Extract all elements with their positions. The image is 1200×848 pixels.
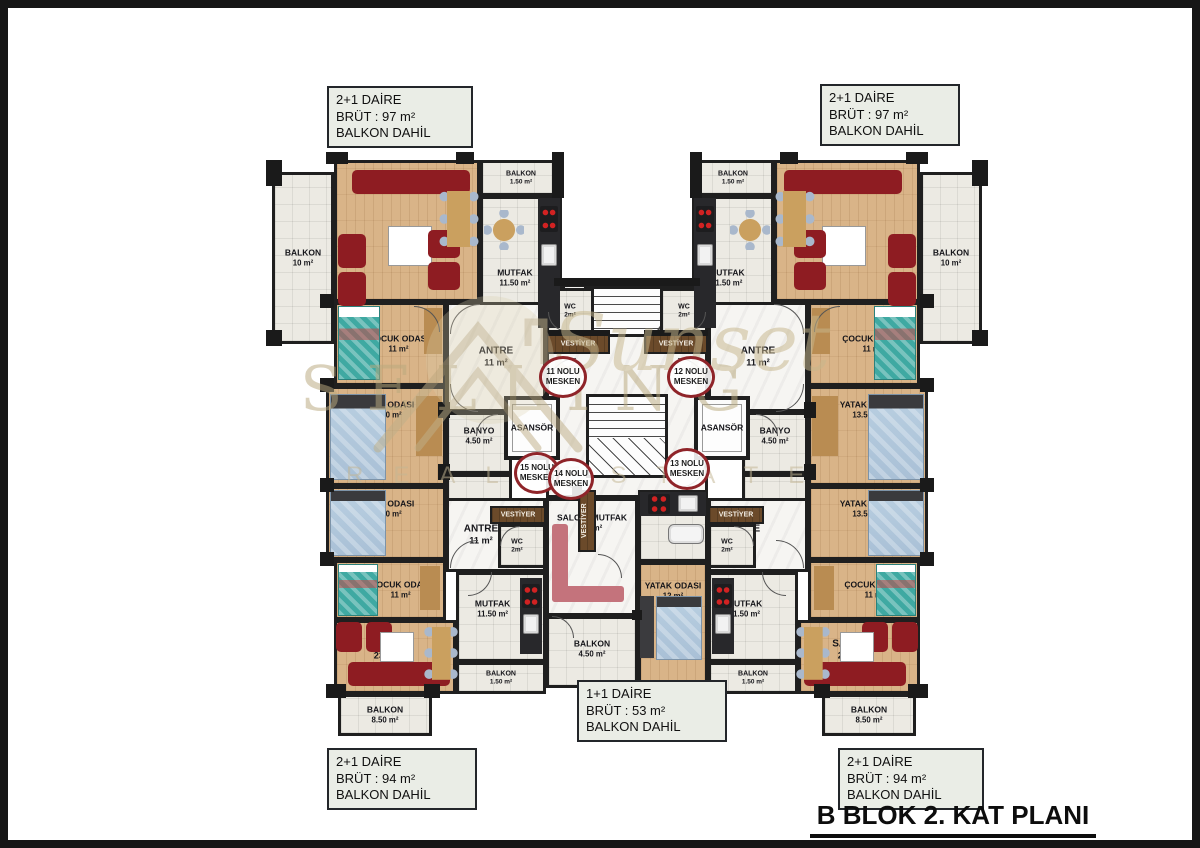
room-balkon-150-top: BALKON1.50 m² bbox=[480, 160, 562, 196]
unit-type: 1+1 DAİRE bbox=[586, 686, 718, 703]
unit-area: BRÜT : 97 m² bbox=[829, 107, 951, 124]
wall-pier bbox=[554, 278, 700, 286]
furniture-dining bbox=[438, 184, 480, 254]
furniture-bedteal bbox=[874, 306, 916, 380]
wall-pier bbox=[552, 152, 564, 198]
furniture-rect bbox=[388, 226, 432, 266]
wall-pier bbox=[644, 330, 708, 336]
wall-pier bbox=[632, 610, 642, 620]
room-balkon-10: BALKON10 m² bbox=[920, 172, 982, 344]
wall-pier bbox=[906, 152, 928, 164]
room-balkon-150-bot: BALKON1.50 m² bbox=[456, 662, 546, 694]
unit-note: BALKON DAHİL bbox=[586, 719, 718, 736]
furniture-bedblue bbox=[868, 394, 924, 480]
wall-pier bbox=[780, 152, 798, 164]
furniture-stove bbox=[522, 584, 540, 608]
furniture-sink bbox=[523, 614, 539, 634]
furniture-stove bbox=[648, 494, 670, 514]
wall-pier bbox=[438, 464, 450, 480]
furniture-dining bbox=[796, 620, 830, 686]
mesken-number-badge: 13 NOLUMESKEN bbox=[664, 448, 710, 490]
room-label-balkon-150-top: BALKON1.50 m² bbox=[483, 169, 559, 186]
unit-type: 2+1 DAİRE bbox=[847, 754, 975, 771]
room-vestiyer-14: VESTİYER bbox=[578, 490, 596, 552]
furniture-stove bbox=[540, 206, 558, 232]
wall-pier bbox=[690, 152, 702, 198]
wall-pier bbox=[546, 330, 610, 336]
furniture-rect bbox=[338, 272, 366, 306]
room-label-balkon-450: BALKON4.50 m² bbox=[549, 638, 635, 659]
furniture-stove bbox=[714, 584, 732, 608]
furniture-bedteal bbox=[338, 306, 380, 380]
room-label-vestiyer-top: VESTİYER bbox=[548, 339, 608, 348]
wall-pier bbox=[814, 684, 830, 698]
furniture-bedteal bbox=[338, 564, 378, 616]
unit-info-box-top-left: 2+1 DAİRE BRÜT : 97 m² BALKON DAHİL bbox=[327, 86, 473, 148]
unit-note: BALKON DAHİL bbox=[336, 125, 464, 142]
wall-pier bbox=[804, 402, 816, 418]
furniture-tub bbox=[668, 524, 704, 544]
room-asansor: ASANSÖR bbox=[504, 396, 560, 460]
furniture-rect bbox=[552, 586, 624, 602]
room-stairs-mid bbox=[586, 394, 668, 478]
unit-note: BALKON DAHİL bbox=[829, 123, 951, 140]
furniture-rect bbox=[822, 226, 866, 266]
mesken-number-badge: 11 NOLUMESKEN bbox=[539, 356, 587, 398]
furniture-rtable bbox=[730, 210, 770, 250]
room-label-balkon-850: BALKON8.50 m² bbox=[341, 704, 429, 725]
room-balkon-150-top: BALKON1.50 m² bbox=[692, 160, 774, 196]
furniture-stove bbox=[696, 206, 714, 232]
furniture-sink bbox=[697, 244, 713, 266]
room-label-vestiyer-14: VESTİYER bbox=[580, 492, 594, 550]
room-label-vestiyer-bot: VESTİYER bbox=[710, 510, 762, 519]
room-label-vestiyer-top: VESTİYER bbox=[646, 339, 706, 348]
wall-pier bbox=[804, 464, 816, 480]
furniture-dining bbox=[424, 620, 458, 686]
room-vestiyer-bot: VESTİYER bbox=[708, 506, 764, 524]
wall-pier bbox=[972, 160, 988, 186]
room-label-balkon-10: BALKON10 m² bbox=[275, 247, 331, 268]
wall-pier bbox=[920, 378, 934, 392]
room-label-antre-top: ANTRE11 m² bbox=[711, 345, 805, 370]
furniture-sink bbox=[541, 244, 557, 266]
room-wc-bot: WC2m² bbox=[708, 524, 756, 568]
wall-pier bbox=[320, 478, 334, 492]
furniture-rect bbox=[840, 632, 874, 662]
room-label-vestiyer-bot: VESTİYER bbox=[492, 510, 544, 519]
room-balkon-850: BALKON8.50 m² bbox=[822, 694, 916, 736]
unit-info-box-bottom-left: 2+1 DAİRE BRÜT : 94 m² BALKON DAHİL bbox=[327, 748, 477, 810]
wall-pier bbox=[326, 152, 348, 164]
furniture-bedblue bbox=[330, 394, 386, 480]
room-asansor: ASANSÖR bbox=[694, 396, 750, 460]
furniture-bedblue bbox=[868, 490, 924, 556]
room-vestiyer-top: VESTİYER bbox=[644, 334, 708, 354]
furniture-rect bbox=[888, 272, 916, 306]
room-balkon-10: BALKON10 m² bbox=[272, 172, 334, 344]
wall-pier bbox=[320, 552, 334, 566]
wall-pier bbox=[908, 684, 928, 698]
furniture-rect bbox=[380, 632, 414, 662]
unit-type: 2+1 DAİRE bbox=[336, 754, 468, 771]
wall-pier bbox=[320, 378, 334, 392]
wall-pier bbox=[920, 478, 934, 492]
unit-area: BRÜT : 94 m² bbox=[847, 771, 975, 788]
wall-pier bbox=[438, 402, 450, 418]
wall-pier bbox=[456, 152, 474, 164]
furniture-rect bbox=[338, 234, 366, 268]
wall-pier bbox=[266, 330, 282, 346]
unit-note: BALKON DAHİL bbox=[336, 787, 468, 804]
unit-type: 2+1 DAİRE bbox=[336, 92, 464, 109]
unit-info-box-top-right: 2+1 DAİRE BRÜT : 97 m² BALKON DAHİL bbox=[820, 84, 960, 146]
unit-area: BRÜT : 94 m² bbox=[336, 771, 468, 788]
wall-pier bbox=[920, 552, 934, 566]
mesken-number-badge: 14 NOLUMESKEN bbox=[548, 458, 594, 500]
wall-pier bbox=[424, 684, 440, 698]
wall-pier bbox=[326, 684, 346, 698]
room-label-asansor: ASANSÖR bbox=[508, 422, 556, 433]
room-label-balkon-150-bot: BALKON1.50 m² bbox=[459, 669, 543, 686]
mesken-number-badge: 12 NOLUMESKEN bbox=[667, 356, 715, 398]
wall-pier bbox=[920, 294, 934, 308]
room-banyo-1: BANYO4.50 m² bbox=[446, 412, 512, 474]
room-banyo-1: BANYO4.50 m² bbox=[742, 412, 808, 474]
furniture-bedteal bbox=[876, 564, 916, 616]
room-void-top bbox=[562, 160, 692, 284]
furniture-rect bbox=[794, 262, 826, 290]
wall-pier bbox=[320, 294, 334, 308]
furniture-rtable bbox=[484, 210, 524, 250]
floor-plan-page: BALKON10 m²BALKON10 m²SALON23 m²SALON23 … bbox=[0, 0, 1200, 848]
wall-pier bbox=[972, 330, 988, 346]
furniture-sink bbox=[678, 495, 698, 512]
wall-pier bbox=[266, 160, 282, 186]
room-label-balkon-850: BALKON8.50 m² bbox=[825, 704, 913, 725]
furniture-rect bbox=[892, 622, 918, 652]
furniture-dining bbox=[774, 184, 816, 254]
room-vestiyer-bot: VESTİYER bbox=[490, 506, 546, 524]
furniture-rect bbox=[640, 596, 654, 658]
furniture-bedblue bbox=[330, 490, 386, 556]
room-balkon-850: BALKON8.50 m² bbox=[338, 694, 432, 736]
furniture-rect bbox=[814, 566, 834, 610]
furniture-bedblue bbox=[656, 596, 702, 660]
room-label-asansor: ASANSÖR bbox=[698, 422, 746, 433]
furniture-sink bbox=[715, 614, 731, 634]
room-label-balkon-150-top: BALKON1.50 m² bbox=[695, 169, 771, 186]
plan-title: B BLOK 2. KAT PLANI bbox=[810, 800, 1096, 838]
unit-info-box-bottom-center: 1+1 DAİRE BRÜT : 53 m² BALKON DAHİL bbox=[577, 680, 727, 742]
unit-type: 2+1 DAİRE bbox=[829, 90, 951, 107]
room-label-balkon-10: BALKON10 m² bbox=[923, 247, 979, 268]
furniture-rect bbox=[428, 262, 460, 290]
room-vestiyer-top: VESTİYER bbox=[546, 334, 610, 354]
furniture-rect bbox=[420, 566, 440, 610]
unit-area: BRÜT : 53 m² bbox=[586, 703, 718, 720]
room-label-antre-top: ANTRE11 m² bbox=[449, 345, 543, 370]
unit-area: BRÜT : 97 m² bbox=[336, 109, 464, 126]
furniture-rect bbox=[336, 622, 362, 652]
furniture-rect bbox=[888, 234, 916, 268]
